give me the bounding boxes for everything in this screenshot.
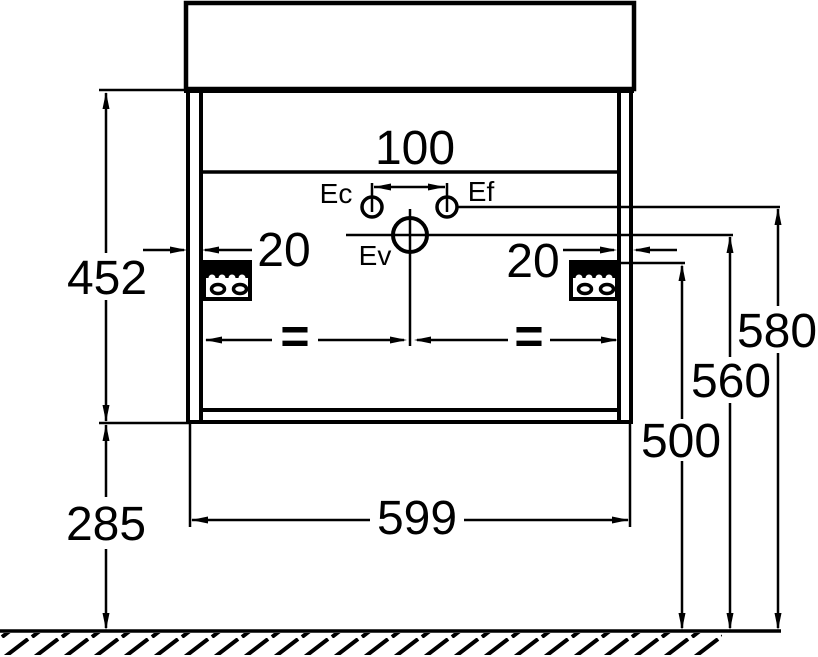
arrowhead-right [170, 247, 187, 254]
dimension-580: 580 [737, 208, 817, 630]
bracket-screw-hole [234, 285, 247, 294]
dim-100-value: 100 [375, 122, 455, 175]
bracket-notch [239, 275, 246, 282]
bracket-screw-hole [601, 285, 614, 294]
bracket-notch [586, 275, 593, 282]
dim-20-right-value: 20 [506, 235, 559, 288]
ef-label: Ef [468, 176, 495, 207]
arrowhead-up [727, 236, 734, 253]
equal-left-symbol: = [280, 308, 309, 364]
countertop-outline [186, 3, 634, 89]
arrowhead-down [775, 613, 782, 630]
dimension-599: 599 [190, 424, 630, 545]
arrowhead-left [374, 184, 391, 191]
arrowhead-left [414, 337, 431, 344]
dim-599-value: 599 [377, 492, 457, 545]
bracket-notch [576, 275, 583, 282]
arrowhead-right [428, 184, 445, 191]
arrowhead-up [775, 208, 782, 225]
arrowhead-left [202, 247, 219, 254]
dim-500-value: 500 [641, 415, 721, 468]
floor-ground [0, 631, 781, 655]
technical-drawing-page: Ec Ef Ev 100 452 285 599 [0, 0, 818, 657]
arrowhead-left [191, 517, 208, 524]
dim-580-value: 580 [737, 305, 817, 358]
arrowhead-down [679, 613, 686, 630]
washbasin-countertop [186, 3, 634, 89]
dim-285-value: 285 [66, 498, 146, 551]
vanity-installation-diagram: Ec Ef Ev 100 452 285 599 [0, 0, 818, 657]
bracket-notch [209, 275, 216, 282]
arrowhead-up [679, 264, 686, 281]
ev-label: Ev [359, 240, 392, 271]
arrowhead-left [205, 337, 222, 344]
bracket-screw-hole [212, 285, 225, 294]
arrowhead-up [103, 424, 110, 441]
arrowhead-down [103, 405, 110, 422]
ec-label: Ec [320, 178, 353, 209]
arrowhead-down [727, 613, 734, 630]
dimension-500: 500 [641, 264, 721, 630]
arrowhead-left [633, 247, 650, 254]
arrowhead-right [390, 337, 407, 344]
arrowhead-right [601, 337, 618, 344]
centerline-equal-dimension: = = [205, 308, 618, 364]
dim-452-value: 452 [67, 252, 147, 305]
bracket-notch [596, 275, 603, 282]
bracket-screw-hole [579, 285, 592, 294]
dim-560-value: 560 [691, 355, 771, 408]
bracket-notch [606, 275, 613, 282]
arrowhead-down [103, 613, 110, 630]
bracket-notch [219, 275, 226, 282]
arrowhead-up [103, 92, 110, 109]
arrowhead-right [600, 247, 617, 254]
mounting-bracket-left [204, 262, 250, 299]
dimension-285: 285 [66, 424, 146, 630]
dim-20-left-value: 20 [257, 224, 310, 277]
ground-hatching [0, 633, 722, 655]
bracket-notch [229, 275, 236, 282]
arrowhead-right [612, 517, 629, 524]
mounting-bracket-right [571, 262, 617, 299]
equal-right-symbol: = [514, 308, 543, 364]
dimension-452: 452 [67, 90, 190, 423]
